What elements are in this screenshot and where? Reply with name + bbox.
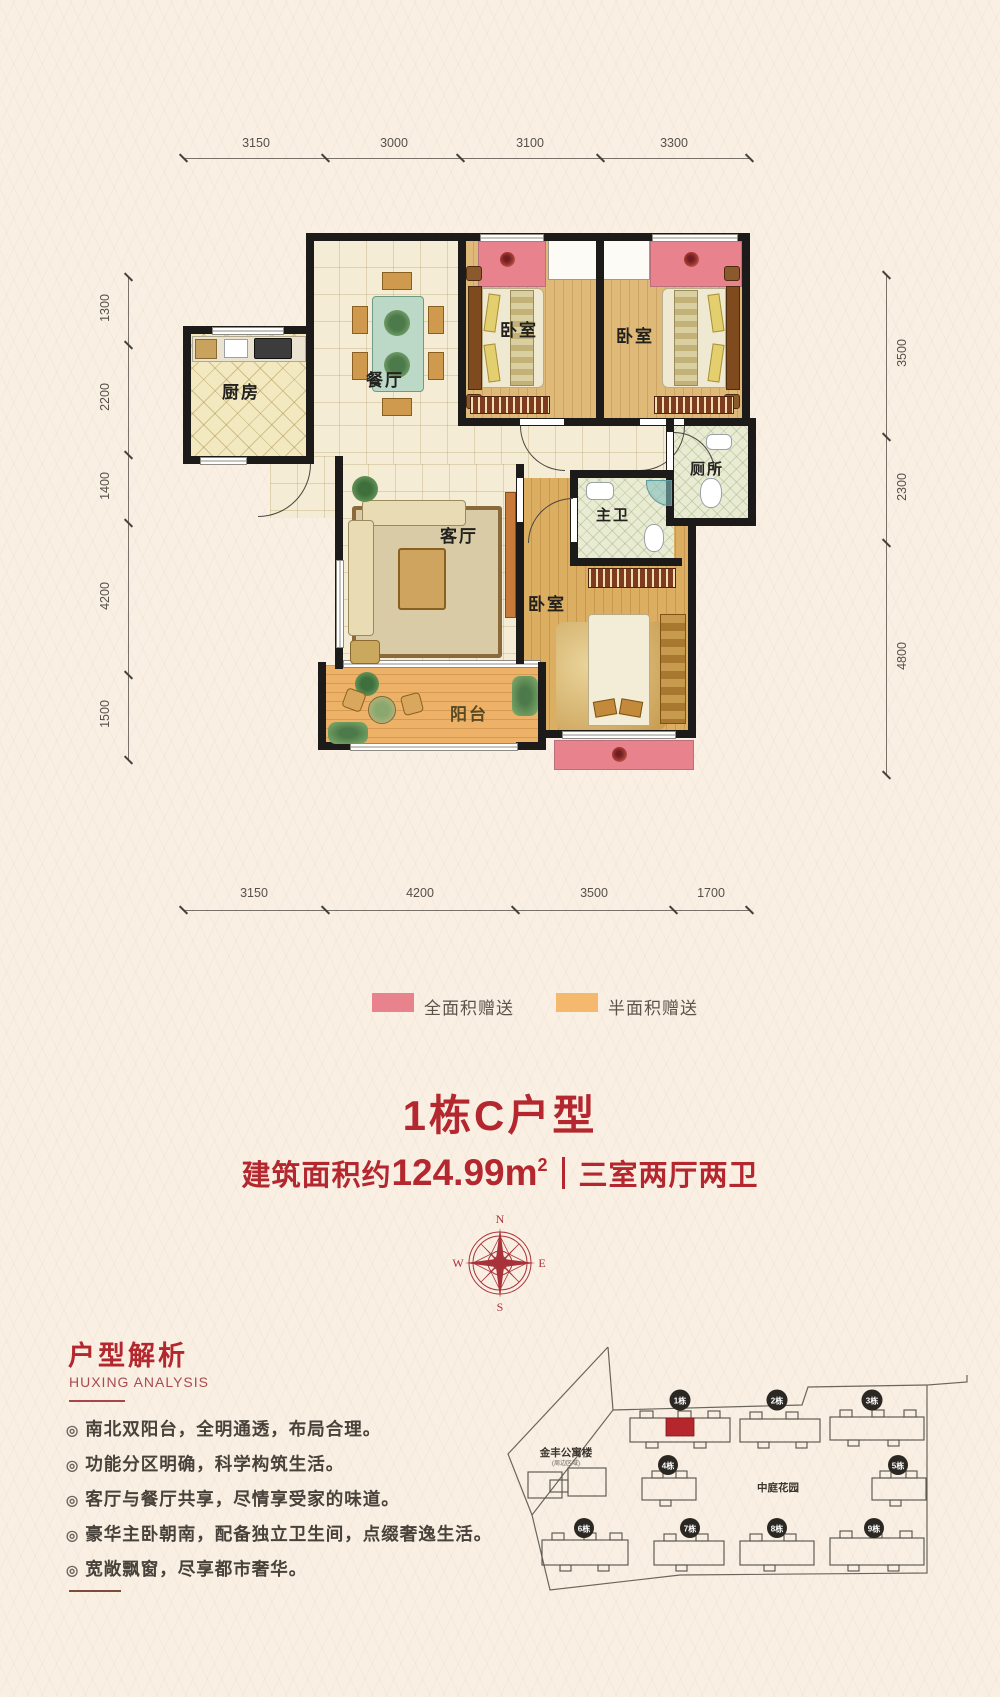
- flower-icon: [684, 252, 699, 267]
- room-label-balcony: 阳台: [450, 700, 488, 725]
- door-gap: [640, 419, 684, 425]
- nightstand: [724, 266, 740, 281]
- building-7-footprint: [654, 1534, 724, 1571]
- dim-top-4: 3300: [642, 136, 706, 150]
- armchair: [350, 640, 380, 664]
- balcony-table: [368, 696, 396, 724]
- badge-9: 9栋: [868, 1524, 880, 1534]
- badge-7: 7栋: [684, 1524, 696, 1534]
- door-gap: [520, 419, 564, 425]
- door-gap: [667, 432, 673, 472]
- wall: [570, 558, 682, 566]
- apartment-label: 金丰公寓楼: [539, 1446, 593, 1459]
- analysis-end-rule: [69, 1590, 121, 1592]
- wall: [666, 518, 696, 526]
- apartment-note: (周边区域): [552, 1459, 580, 1467]
- chair: [382, 272, 412, 290]
- window: [480, 234, 544, 242]
- building-8-footprint: [740, 1534, 814, 1571]
- building-badges: 1栋 2栋 3栋 4栋 5栋 6栋 7栋 8栋 9栋: [574, 1390, 908, 1539]
- legend-label-half-area: 半面积赠送: [608, 994, 698, 1019]
- plant: [352, 476, 378, 502]
- wall: [306, 233, 314, 333]
- room-label-living: 客厅: [440, 522, 478, 547]
- badge-3: 3栋: [866, 1396, 878, 1406]
- window: [336, 560, 344, 648]
- site-plan: 1栋 2栋 3栋 4栋 5栋 6栋 7栋 8栋 9栋 金丰公寓楼 (周边区域) …: [480, 1248, 1000, 1618]
- chair: [352, 306, 368, 334]
- badge-5: 5栋: [892, 1461, 904, 1471]
- unit-title: 1栋C户型: [0, 1082, 1000, 1143]
- dresser: [654, 396, 734, 414]
- toilet-fixture: [700, 478, 722, 508]
- bullet-text: 功能分区明确，科学构筑生活。: [85, 1454, 344, 1474]
- tv-console: [505, 492, 516, 618]
- badge-1: 1栋: [674, 1396, 686, 1406]
- badge-6: 6栋: [578, 1524, 590, 1534]
- window: [652, 234, 738, 242]
- analysis-subtitle: HUXING ANALYSIS: [69, 1374, 209, 1390]
- layout-text: 三室两厅两卫: [579, 1160, 759, 1192]
- dimension-line-bottom: [183, 910, 749, 911]
- dim-bottom-2: 4200: [388, 886, 452, 900]
- room-label-kitchen: 厨房: [222, 378, 260, 403]
- coffee-table: [398, 548, 446, 610]
- dim-right-1: 3500: [895, 321, 909, 385]
- stove: [254, 338, 292, 359]
- wall: [183, 326, 191, 464]
- blanket: [674, 290, 698, 386]
- wall: [458, 418, 756, 426]
- dim-left-3: 1400: [98, 454, 112, 518]
- window: [200, 457, 247, 465]
- toilet-sink: [706, 434, 732, 450]
- garden-label: 中庭花园: [757, 1481, 799, 1494]
- dim-bottom-4: 1700: [679, 886, 743, 900]
- bullet-text: 客厅与餐厅共享，尽情享受家的味道。: [85, 1489, 400, 1509]
- wall: [742, 233, 750, 425]
- area-prefix: 建筑面积约: [241, 1160, 391, 1192]
- dimension-line-right: [886, 275, 887, 775]
- bullet-icon: ◎: [66, 1527, 79, 1543]
- fridge: [195, 339, 217, 359]
- nightstand: [466, 266, 482, 281]
- unit-subtitle: 建筑面积约124.99m2三室两厅两卫: [0, 1152, 1000, 1194]
- sofa-left: [348, 520, 374, 636]
- building-3-footprint: [830, 1410, 924, 1446]
- window: [562, 731, 676, 739]
- room-label-master-bath: 主卫: [596, 504, 630, 525]
- divider-bar: [562, 1157, 565, 1189]
- dim-bottom-3: 3500: [562, 886, 626, 900]
- site-parcel-line: [508, 1347, 608, 1515]
- wall: [306, 233, 466, 241]
- compass-w: W: [452, 1256, 464, 1270]
- wall: [596, 233, 604, 426]
- wall: [318, 662, 326, 750]
- bullet-text: 豪华主卧朝南，配备独立卫生间，点缀奢逸生活。: [85, 1524, 492, 1544]
- balcony-plants: [328, 722, 368, 744]
- analysis-title: 户型解析: [68, 1334, 188, 1373]
- bullet-icon: ◎: [66, 1562, 79, 1578]
- dresser: [470, 396, 550, 414]
- dim-left-5: 1500: [98, 682, 112, 746]
- dim-right-2: 2300: [895, 455, 909, 519]
- sink: [224, 339, 248, 358]
- dim-left-2: 2200: [98, 365, 112, 429]
- building-5-footprint: [872, 1471, 926, 1506]
- chair: [428, 352, 444, 380]
- bench: [660, 614, 686, 724]
- bullet-icon: ◎: [66, 1457, 79, 1473]
- floorplan-page: 3150 3000 3100 3300 3150 4200 3500 1700 …: [0, 0, 1000, 1697]
- dim-left-1: 1300: [98, 276, 112, 340]
- analysis-bullet: ◎豪华主卧朝南，配备独立卫生间，点缀奢逸生活。: [66, 1521, 492, 1546]
- dimension-line-top: [183, 158, 749, 159]
- badge-2: 2栋: [771, 1396, 783, 1406]
- analysis-bullet: ◎南北双阳台，全明通透，布局合理。: [66, 1416, 381, 1441]
- dim-top-1: 3150: [224, 136, 288, 150]
- highlighted-unit-c: [666, 1418, 694, 1436]
- analysis-bullet: ◎宽敞飘窗，尽享都市奢华。: [66, 1556, 307, 1581]
- room-label-toilet: 厕所: [690, 458, 724, 479]
- analysis-bullet: ◎功能分区明确，科学构筑生活。: [66, 1451, 344, 1476]
- toilet-fixture: [644, 524, 664, 552]
- bed-headboard: [726, 286, 740, 390]
- bullet-text: 宽敞飘窗，尽享都市奢华。: [85, 1559, 307, 1579]
- flower-icon: [612, 747, 627, 762]
- room-label-master-bedroom: 卧室: [528, 590, 566, 615]
- building-6-footprint: [542, 1533, 628, 1571]
- analysis-rule: [69, 1400, 125, 1402]
- wall: [688, 518, 756, 526]
- room-label-dining: 餐厅: [366, 366, 404, 391]
- room-label-bedroom1: 卧室: [500, 316, 538, 341]
- wall: [688, 518, 696, 738]
- balcony-plants: [512, 676, 538, 716]
- dim-right-3: 4800: [895, 624, 909, 688]
- bullet-icon: ◎: [66, 1492, 79, 1508]
- building-4-footprint: [642, 1471, 696, 1506]
- flower-icon: [500, 252, 515, 267]
- dim-top-3: 3100: [498, 136, 562, 150]
- badge-8: 8栋: [771, 1524, 783, 1534]
- chair: [382, 398, 412, 416]
- bullet-icon: ◎: [66, 1422, 79, 1438]
- wall: [570, 470, 674, 478]
- apartment-footprint: [528, 1468, 606, 1498]
- legend-swatch-half-area: [556, 993, 598, 1012]
- door-gap: [517, 478, 523, 522]
- dim-bottom-1: 3150: [222, 886, 286, 900]
- legend-swatch-full-area: [372, 993, 414, 1012]
- balcony-window: [350, 743, 518, 751]
- badge-4: 4栋: [662, 1461, 674, 1471]
- analysis-bullet: ◎客厅与餐厅共享，尽情享受家的味道。: [66, 1486, 400, 1511]
- wardrobe: [588, 568, 676, 588]
- wall: [306, 326, 314, 464]
- building-2-footprint: [740, 1412, 820, 1448]
- plant-decor: [384, 310, 410, 336]
- dimension-line-left: [128, 277, 129, 760]
- compass-n: N: [496, 1212, 505, 1226]
- dim-left-4: 4200: [98, 564, 112, 628]
- dim-top-2: 3000: [362, 136, 426, 150]
- area-exponent: 2: [538, 1155, 548, 1175]
- bed-headboard: [468, 286, 482, 390]
- bullet-text: 南北双阳台，全明通透，布局合理。: [85, 1419, 381, 1439]
- bath-sink: [586, 482, 614, 500]
- window: [212, 327, 284, 335]
- room-label-bedroom2: 卧室: [616, 322, 654, 347]
- area-value: 124.99m: [391, 1152, 537, 1193]
- wall: [748, 418, 756, 526]
- legend-label-full-area: 全面积赠送: [424, 994, 514, 1019]
- wall: [458, 233, 466, 426]
- chair: [428, 306, 444, 334]
